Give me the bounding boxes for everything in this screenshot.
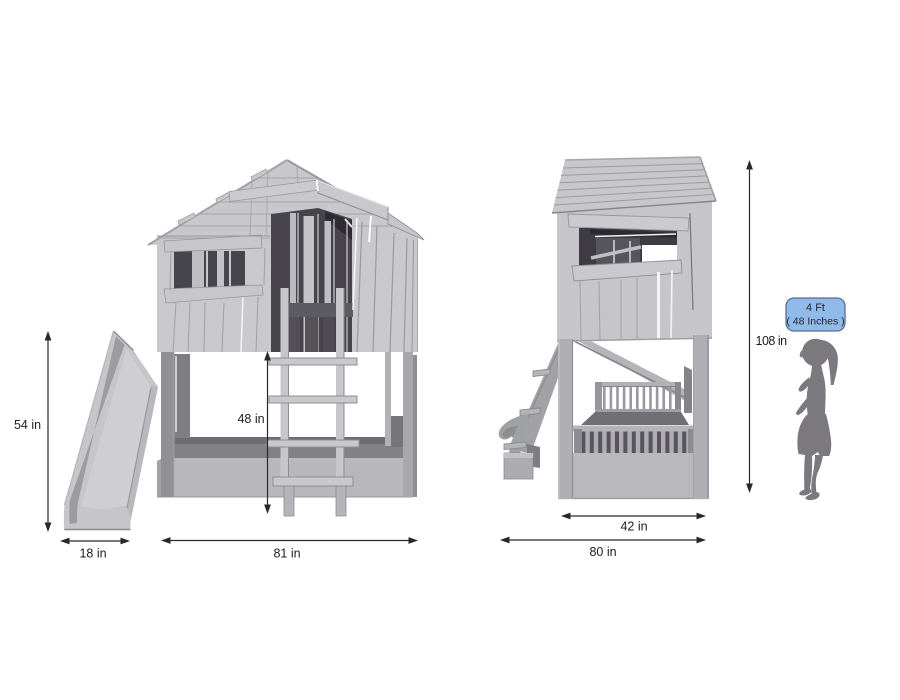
svg-text:( 48 Inches ): ( 48 Inches ) [786, 316, 844, 328]
svg-text:4 Ft: 4 Ft [806, 302, 825, 314]
svg-text:18 in: 18 in [79, 547, 106, 561]
svg-text:80 in: 80 in [589, 545, 616, 559]
svg-text:48 in: 48 in [237, 412, 264, 426]
svg-text:54 in: 54 in [14, 418, 41, 432]
svg-text:108 in: 108 in [756, 334, 788, 348]
svg-text:42 in: 42 in [620, 520, 647, 534]
svg-text:81 in: 81 in [273, 547, 300, 561]
